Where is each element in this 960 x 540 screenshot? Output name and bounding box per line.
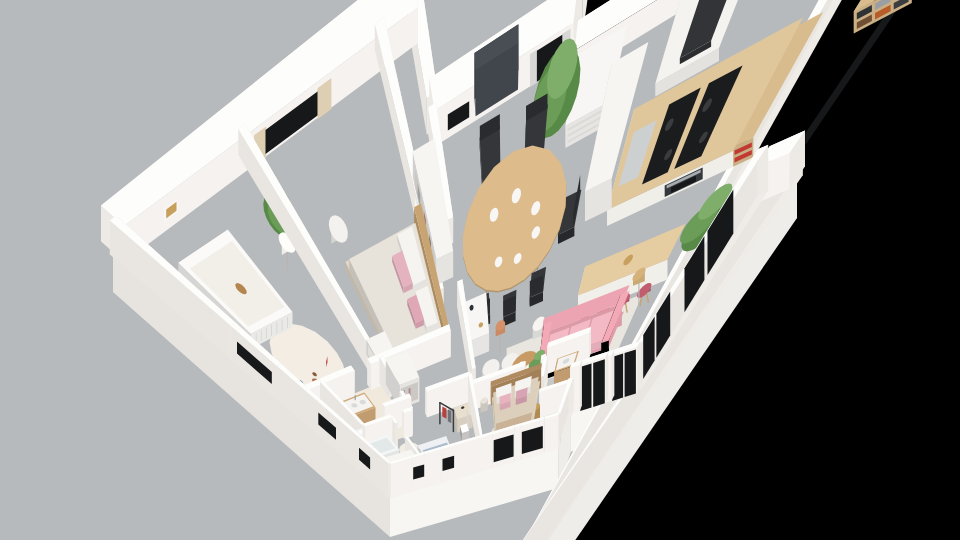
wall-se-master-g	[515, 423, 522, 462]
wall-se-living-d	[611, 341, 640, 401]
wall-se-master-b	[411, 452, 425, 492]
wall-se-master-c	[424, 447, 442, 488]
wall-se-master-a	[389, 456, 412, 498]
floor-plan-stage	[0, 0, 960, 540]
wall-se-master-h	[521, 416, 545, 460]
floor-plan-3d-render	[0, 0, 960, 540]
wall-se-living-b	[580, 352, 608, 412]
wall-se-master-d	[440, 443, 455, 483]
wall-se-master-f	[492, 425, 514, 468]
wall-se-master-i	[544, 412, 559, 453]
dining-chair-4	[503, 290, 516, 326]
master-side-table-left	[481, 397, 488, 412]
wall-bath1-south-b	[402, 407, 412, 439]
wall-nursery-south-b	[367, 355, 380, 390]
